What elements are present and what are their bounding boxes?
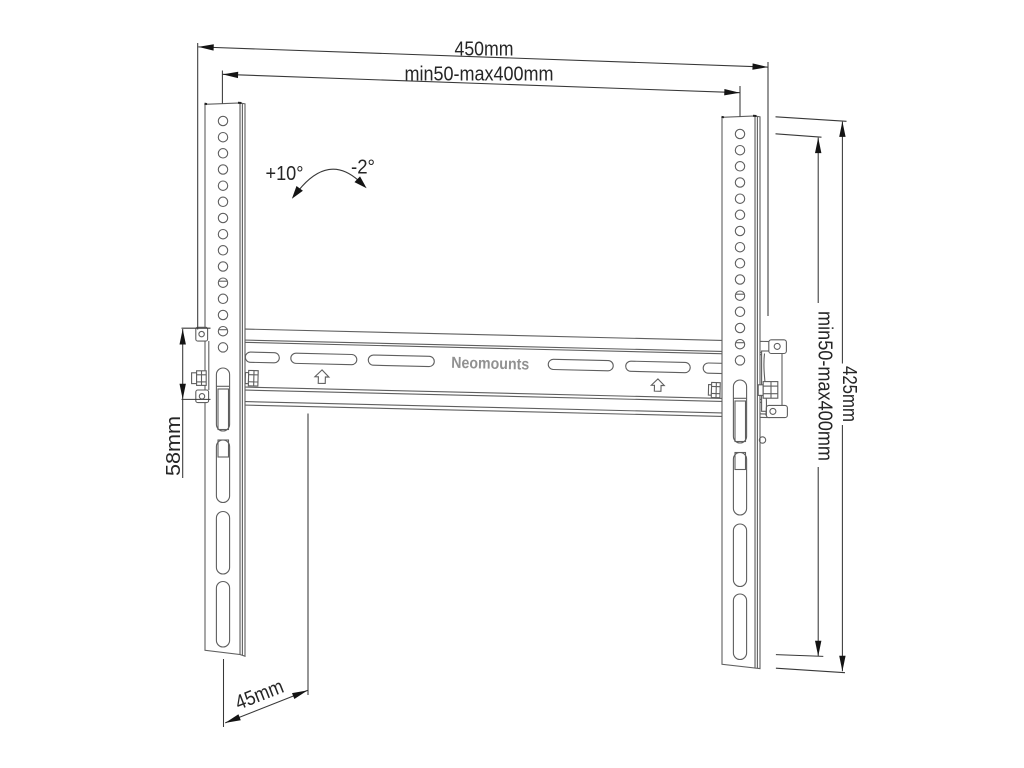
svg-text:450mm: 450mm <box>455 37 514 60</box>
svg-text:425mm: 425mm <box>838 366 861 422</box>
svg-text:58mm: 58mm <box>162 416 185 476</box>
svg-text:+10°: +10° <box>266 162 304 185</box>
svg-text:min50-max400mm: min50-max400mm <box>405 63 554 86</box>
svg-text:min50-max400mm: min50-max400mm <box>814 311 837 461</box>
svg-text:-2°: -2° <box>351 156 375 179</box>
svg-text:Neomounts: Neomounts <box>451 355 529 374</box>
